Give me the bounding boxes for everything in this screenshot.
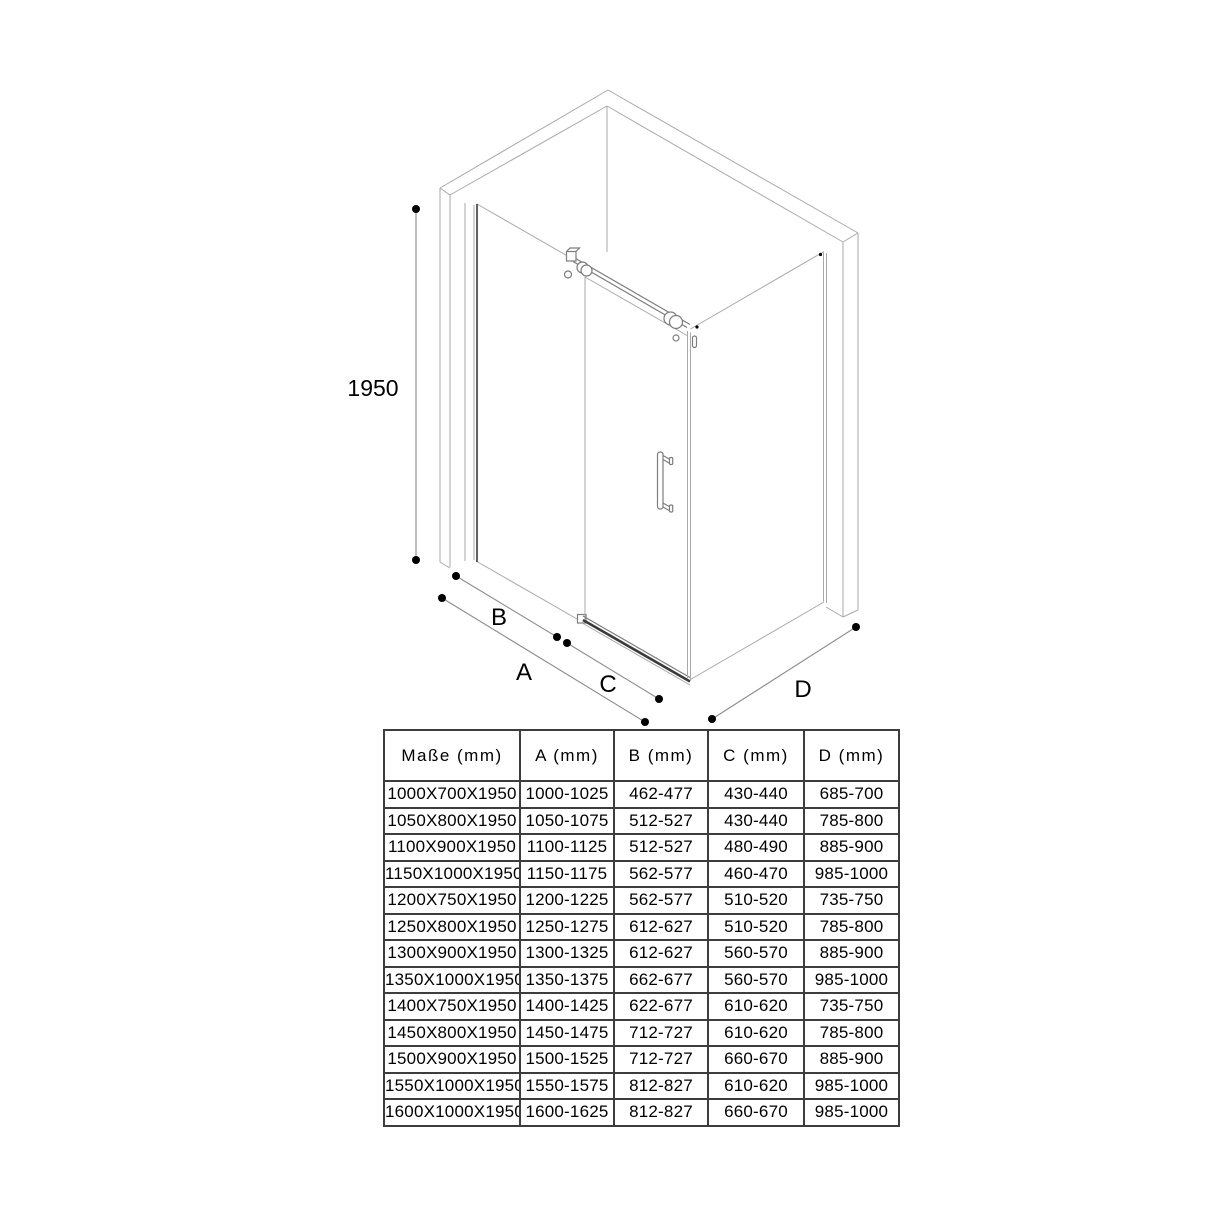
door-handle — [658, 452, 673, 512]
table-cell: 510-520 — [708, 914, 804, 941]
table-cell: 1150-1175 — [520, 861, 614, 888]
table-row: 1200X750X1950 1200-1225 562-577 510-520 … — [384, 887, 899, 914]
table-cell: 462-477 — [614, 781, 708, 808]
table-cell: 512-527 — [614, 834, 708, 861]
table-body: 1000X700X1950 1000-1025 462-477 430-440 … — [384, 781, 899, 1126]
table-cell: 610-620 — [708, 993, 804, 1020]
table-cell: 1250X800X1950 — [384, 914, 520, 941]
table-header-cell-a: A (mm) — [520, 730, 614, 781]
dimension-a-line — [442, 598, 645, 722]
table-cell: 1500X900X1950 — [384, 1046, 520, 1073]
table-cell: 1350X1000X1950 — [384, 967, 520, 994]
table-cell: 1250-1275 — [520, 914, 614, 941]
table-cell: 1000X700X1950 — [384, 781, 520, 808]
table-cell: 812-827 — [614, 1099, 708, 1126]
table-cell: 612-627 — [614, 914, 708, 941]
table-cell: 1400-1425 — [520, 993, 614, 1020]
dimension-dot — [412, 556, 420, 564]
table-cell: 1100X900X1950 — [384, 834, 520, 861]
table-cell: 560-570 — [708, 940, 804, 967]
table-header-cell-b: B (mm) — [614, 730, 708, 781]
fixed-panel-edges — [465, 203, 584, 623]
dimension-a-label: A — [516, 659, 532, 686]
corner-mark — [695, 325, 698, 328]
dimension-dot — [452, 572, 460, 580]
dimension-dot — [708, 715, 716, 723]
dimension-dot — [553, 633, 561, 641]
table-cell: 1550X1000X1950 — [384, 1073, 520, 1100]
dimension-height-label: 1950 — [347, 375, 398, 401]
dimension-spec-table: Maße (mm) A (mm) B (mm) C (mm) D (mm) 10… — [383, 729, 900, 1127]
table-cell: 662-677 — [614, 967, 708, 994]
table-cell: 480-490 — [708, 834, 804, 861]
dimension-dot — [438, 594, 446, 602]
table-cell: 1200-1225 — [520, 887, 614, 914]
handle-pad-top — [670, 458, 673, 465]
dimension-dot — [563, 639, 571, 647]
dimension-b-label: B — [491, 604, 507, 631]
dimension-dot — [641, 718, 649, 726]
dimension-a: A — [438, 594, 649, 726]
handle-pad-bottom — [670, 505, 673, 512]
corner-mark — [819, 253, 822, 256]
side-glass-panel — [688, 252, 827, 681]
dimension-b: B — [452, 572, 561, 641]
table-row: 1050X800X1950 1050-1075 512-527 430-440 … — [384, 808, 899, 835]
wall-bracket-body — [567, 252, 577, 262]
fixed-glass-panel — [465, 203, 586, 623]
table-cell: 735-750 — [804, 887, 899, 914]
table-cell: 430-440 — [708, 781, 804, 808]
side-panel-edges — [688, 252, 827, 681]
table-row: 1150X1000X1950 1150-1175 562-577 460-470… — [384, 861, 899, 888]
table-cell: 1300-1325 — [520, 940, 614, 967]
table-row: 1600X1000X1950 1600-1625 812-827 660-670… — [384, 1099, 899, 1126]
table-cell: 712-727 — [614, 1046, 708, 1073]
table-cell: 1050-1075 — [520, 808, 614, 835]
door-track-assembly — [565, 248, 691, 341]
table-cell: 812-827 — [614, 1073, 708, 1100]
table-cell: 512-527 — [614, 808, 708, 835]
table-header-cell-masse: Maße (mm) — [384, 730, 520, 781]
side-panel-slot — [693, 336, 697, 348]
table-cell: 1150X1000X1950 — [384, 861, 520, 888]
screw-right-icon — [673, 335, 679, 341]
table-cell: 1100-1125 — [520, 834, 614, 861]
table-header-cell-d: D (mm) — [804, 730, 899, 781]
door-bottom-rail-top — [583, 616, 690, 678]
table-row: 1100X900X1950 1100-1125 512-527 480-490 … — [384, 834, 899, 861]
page: 1950 B A C D — [0, 0, 1214, 1214]
door-edges — [585, 277, 688, 619]
table-header-cell-c: C (mm) — [708, 730, 804, 781]
table-cell: 712-727 — [614, 1020, 708, 1047]
table-cell: 1600X1000X1950 — [384, 1099, 520, 1126]
dimension-d: D — [708, 623, 860, 723]
table-cell: 1400X750X1950 — [384, 993, 520, 1020]
table-cell: 1300X900X1950 — [384, 940, 520, 967]
table-cell: 612-627 — [614, 940, 708, 967]
table-cell: 510-520 — [708, 887, 804, 914]
dimension-c: C — [563, 639, 663, 703]
table-cell: 610-620 — [708, 1020, 804, 1047]
table-cell: 1050X800X1950 — [384, 808, 520, 835]
table-cell: 1600-1625 — [520, 1099, 614, 1126]
table-cell: 885-900 — [804, 940, 899, 967]
table-cell: 660-670 — [708, 1099, 804, 1126]
right-wall — [607, 90, 858, 617]
dimension-c-label: C — [599, 671, 616, 698]
table-cell: 985-1000 — [804, 967, 899, 994]
table-cell: 1450-1475 — [520, 1020, 614, 1047]
dimension-d-line — [712, 627, 856, 719]
table-cell: 1450X800X1950 — [384, 1020, 520, 1047]
table-cell: 1350-1375 — [520, 967, 614, 994]
table-cell: 610-620 — [708, 1073, 804, 1100]
table-row: 1300X900X1950 1300-1325 612-627 560-570 … — [384, 940, 899, 967]
table-cell: 622-677 — [614, 993, 708, 1020]
table-row: 1000X700X1950 1000-1025 462-477 430-440 … — [384, 781, 899, 808]
table-row: 1450X800X1950 1450-1475 712-727 610-620 … — [384, 1020, 899, 1047]
dimension-dot — [412, 205, 420, 213]
table-cell: 785-800 — [804, 914, 899, 941]
table-cell: 785-800 — [804, 808, 899, 835]
table-cell: 685-700 — [804, 781, 899, 808]
table-cell: 785-800 — [804, 1020, 899, 1047]
table-cell: 885-900 — [804, 834, 899, 861]
table-header: Maße (mm) A (mm) B (mm) C (mm) D (mm) — [384, 730, 899, 781]
table-cell: 560-570 — [708, 967, 804, 994]
handle-bar — [658, 452, 664, 509]
table-row: 1350X1000X1950 1350-1375 662-677 560-570… — [384, 967, 899, 994]
table-cell: 562-577 — [614, 887, 708, 914]
table-cell: 1500-1525 — [520, 1046, 614, 1073]
table-cell: 985-1000 — [804, 861, 899, 888]
table-cell: 430-440 — [708, 808, 804, 835]
table-cell: 735-750 — [804, 993, 899, 1020]
table-cell: 985-1000 — [804, 1099, 899, 1126]
table-cell: 1200X750X1950 — [384, 887, 520, 914]
table-cell: 460-470 — [708, 861, 804, 888]
table-cell: 562-577 — [614, 861, 708, 888]
roller-left-icon — [581, 265, 592, 276]
table-cell: 1550-1575 — [520, 1073, 614, 1100]
table-row: 1400X750X1950 1400-1425 622-677 610-620 … — [384, 993, 899, 1020]
table-cell: 885-900 — [804, 1046, 899, 1073]
right-wall-edges — [607, 90, 858, 617]
screw-left-icon — [565, 271, 572, 278]
dimension-dot — [852, 623, 860, 631]
table-cell: 1000-1025 — [520, 781, 614, 808]
dimension-dot — [655, 695, 663, 703]
dimension-height: 1950 — [347, 205, 420, 564]
roller-right-icon — [670, 316, 683, 329]
table-row: 1250X800X1950 1250-1275 612-627 510-520 … — [384, 914, 899, 941]
table-cell: 985-1000 — [804, 1073, 899, 1100]
table-row: 1550X1000X1950 1550-1575 812-827 610-620… — [384, 1073, 899, 1100]
table-row: 1500X900X1950 1500-1525 712-727 660-670 … — [384, 1046, 899, 1073]
table-cell: 660-670 — [708, 1046, 804, 1073]
table-header-row: Maße (mm) A (mm) B (mm) C (mm) D (mm) — [384, 730, 899, 781]
dimension-d-label: D — [794, 676, 811, 703]
